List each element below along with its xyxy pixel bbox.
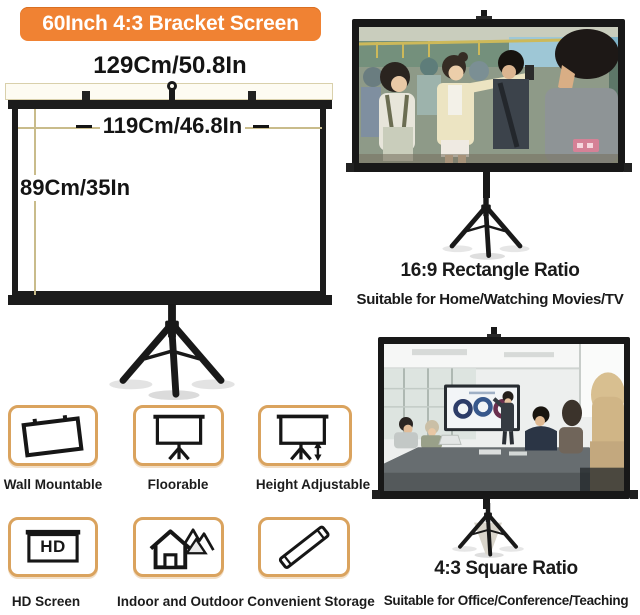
frame-end-tab <box>624 163 632 172</box>
feature-label: Floorable <box>128 477 228 492</box>
banner-label: 60Inch 4:3 Bracket Screen <box>42 12 298 36</box>
square-ratio-title: 4:3 Square Ratio <box>380 558 632 580</box>
diagram-top-bar <box>8 100 332 109</box>
feature-card-hd-screen: HD <box>8 517 98 577</box>
tripod-stand-icon <box>103 304 241 402</box>
height-adjust-screen-icon <box>267 411 343 461</box>
height-label: 89Cm/35In <box>20 175 134 201</box>
feature-label: Indoor and Outdoor <box>117 594 237 609</box>
inner-width-label: 119Cm/46.8In <box>100 113 245 139</box>
rectangle-ratio-subtitle: Suitable for Home/Watching Movies/TV <box>340 291 640 308</box>
hd-badge: HD <box>11 520 95 574</box>
feature-label: HD Screen <box>0 594 92 609</box>
feature-card-indoor-outdoor <box>133 517 224 577</box>
height-measure-line <box>34 109 36 295</box>
office-scene-photo <box>384 344 624 491</box>
bracket-tab-left <box>82 91 90 100</box>
frame-end-tab <box>630 490 638 499</box>
frame-end-tab <box>372 490 380 499</box>
product-infographic: 60Inch 4:3 Bracket Screen 129Cm/50.8In 1… <box>0 0 640 615</box>
outer-width-label: 129Cm/50.8In <box>0 52 340 80</box>
measure-dash-right <box>253 125 269 128</box>
tripod-stand-icon <box>438 503 538 559</box>
movie-screen-frame <box>352 19 625 172</box>
tripod-stand-icon <box>430 193 542 261</box>
bracket-tab-right <box>248 91 256 100</box>
movie-scene-photo <box>359 27 618 163</box>
square-ratio-subtitle: Suitable for Office/Conference/Teaching <box>374 593 638 608</box>
measure-dash-left <box>76 125 92 128</box>
house-icon <box>140 522 218 572</box>
feature-label: Height Adjustable <box>253 477 373 492</box>
product-banner: 60Inch 4:3 Bracket Screen <box>20 7 321 41</box>
rectangle-ratio-title: 16:9 Rectangle Ratio <box>345 260 635 282</box>
hanger-hook-icon <box>165 81 179 100</box>
inner-width-measure: 119Cm/46.8In <box>50 113 295 139</box>
frame-end-tab <box>346 163 354 172</box>
feature-card-floorable <box>133 405 224 466</box>
feature-label: Convenient Storage <box>246 594 376 609</box>
feature-card-height-adjustable <box>258 405 352 466</box>
feature-label: Wall Mountable <box>0 477 106 492</box>
office-screen-frame <box>378 337 630 499</box>
tripod-screen-icon <box>143 411 215 461</box>
wall-mount-screen-icon <box>17 412 89 460</box>
feature-card-storage <box>258 517 350 577</box>
storage-tube-icon <box>266 523 342 571</box>
feature-card-wall-mountable <box>8 405 98 466</box>
